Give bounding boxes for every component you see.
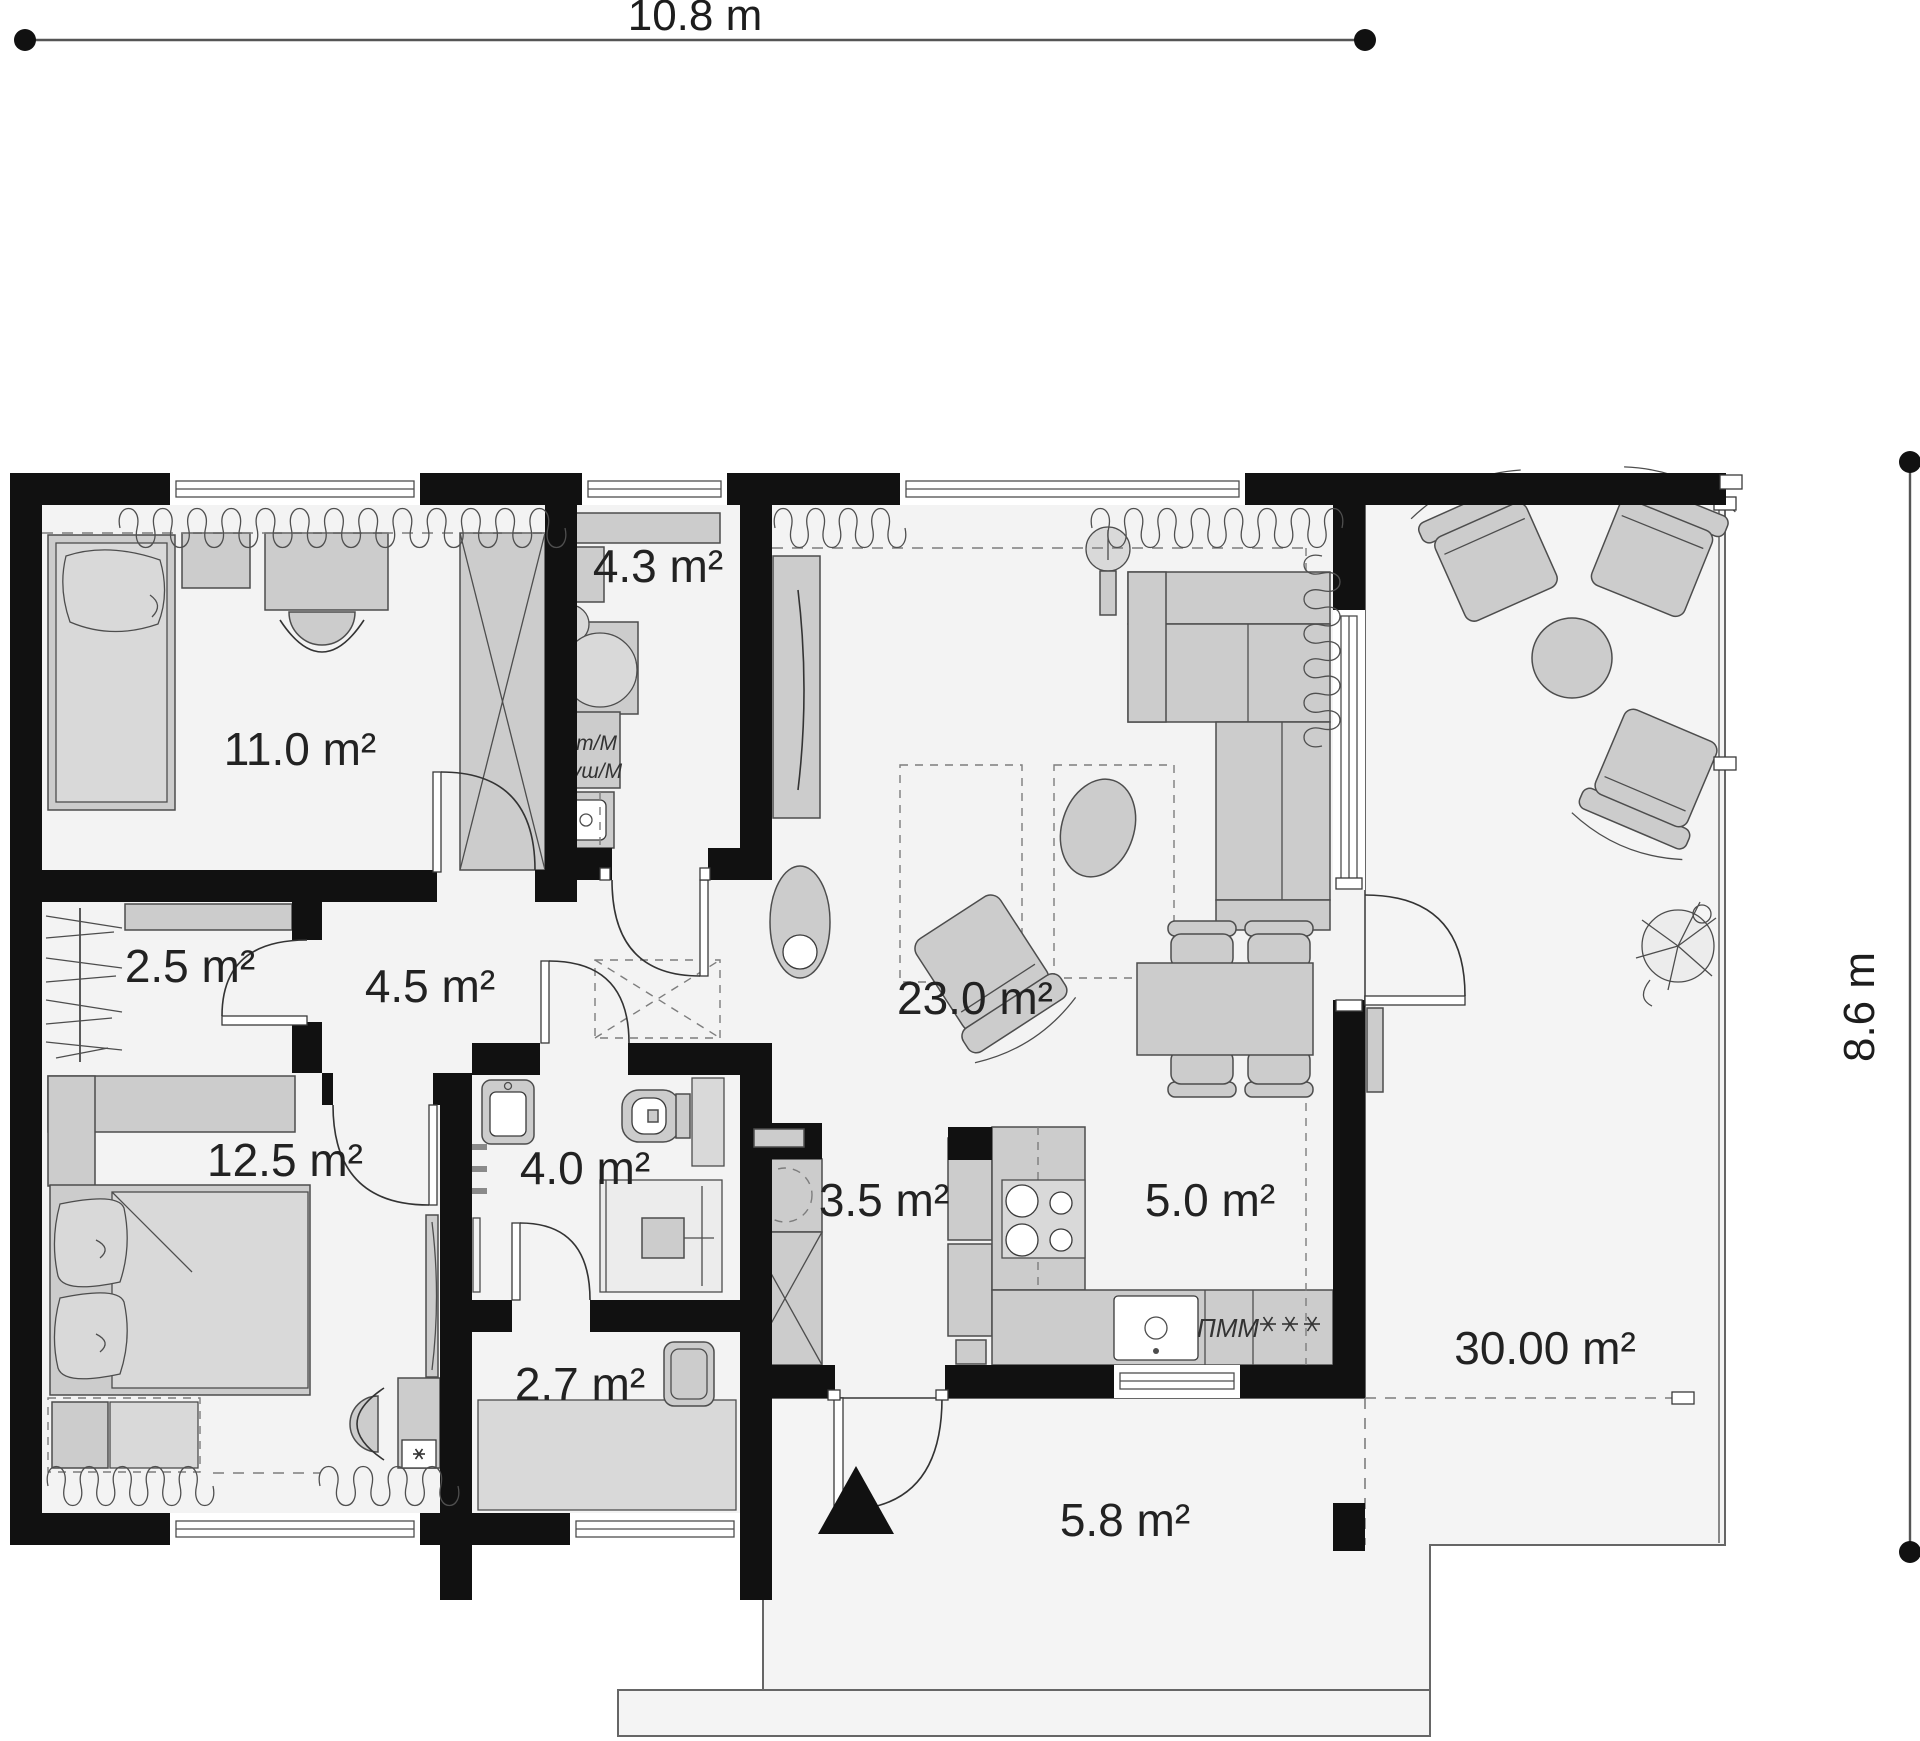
height-dimension-label: 8.6 m	[1835, 952, 1884, 1062]
post-marker	[1714, 757, 1736, 770]
dimension-dot	[1354, 29, 1376, 51]
sliding-glass-door	[1333, 610, 1365, 890]
tall-unit	[948, 1244, 992, 1336]
window	[170, 1513, 420, 1545]
pillow	[63, 550, 165, 632]
room-area-label: 5.8 m²	[1060, 1494, 1190, 1546]
wardrobe	[48, 1076, 95, 1186]
post-marker	[1720, 475, 1742, 489]
closet-shelf	[125, 904, 292, 930]
floor-plan-drawing: 10.8 m 8.6 m	[0, 0, 1920, 1741]
bench	[110, 1402, 198, 1468]
right-dimension: 8.6 m	[1835, 451, 1920, 1563]
room-area-label: 4.3 m²	[593, 540, 723, 592]
window	[1114, 1365, 1240, 1398]
cooktop	[1002, 1180, 1085, 1258]
sofa-chaise	[1216, 722, 1330, 900]
top-dimension: 10.8 m	[14, 0, 1376, 51]
dining-chair	[1245, 921, 1313, 968]
room-area-label: 4.5 m²	[365, 960, 495, 1012]
shower-head	[642, 1218, 684, 1258]
shower	[600, 1180, 722, 1292]
dining-chair	[1168, 921, 1236, 968]
outdoor-wall-unit	[1367, 1008, 1383, 1092]
room-area-label: 30.00 m²	[1454, 1322, 1636, 1374]
pillow	[54, 1199, 127, 1287]
room-area-label: 3.5 m²	[819, 1174, 949, 1226]
side-table	[770, 866, 830, 978]
counter	[558, 513, 720, 543]
width-dimension-label: 10.8 m	[628, 0, 763, 40]
room-area-label: 2.7 m²	[515, 1358, 645, 1410]
pillow	[54, 1293, 127, 1379]
porch-pillar	[1333, 1503, 1365, 1551]
window	[170, 473, 420, 505]
window	[900, 473, 1245, 505]
desk	[265, 533, 388, 610]
room-area-label: 23.0 m²	[897, 972, 1053, 1024]
niche-shelf	[754, 1129, 804, 1147]
dimension-dot	[14, 29, 36, 51]
dimension-dot	[1899, 451, 1920, 473]
post-marker	[1672, 1392, 1694, 1404]
storage-bench	[478, 1400, 736, 1510]
dimension-dot	[1899, 1541, 1920, 1563]
sofa-armrest	[1128, 572, 1166, 722]
room-area-label: 2.5 m²	[125, 940, 255, 992]
room-area-label: 4.0 m²	[520, 1142, 650, 1194]
window	[582, 473, 727, 505]
entrance-step	[618, 1690, 1430, 1736]
bench	[52, 1402, 108, 1468]
terrace-coffee-table	[1532, 618, 1612, 698]
mirror-box	[402, 1440, 436, 1468]
floor-plan-page: 10.8 m 8.6 m	[0, 0, 1920, 1741]
dining-chair	[1168, 1050, 1236, 1097]
tv-unit	[773, 556, 820, 818]
room-area-label: 12.5 m²	[207, 1134, 363, 1186]
kitchen-sink	[1114, 1296, 1198, 1360]
window	[570, 1513, 740, 1545]
room-area-label: 11.0 m²	[224, 723, 377, 775]
room-area-label: 5.0 m²	[1145, 1174, 1275, 1226]
dining-table	[1137, 963, 1313, 1055]
washbasin	[482, 1080, 534, 1144]
small-cabinet	[956, 1340, 986, 1364]
dining-chair	[1245, 1050, 1313, 1097]
dishwasher-label: ПММ	[1197, 1313, 1259, 1343]
plumbing-duct	[692, 1078, 724, 1166]
